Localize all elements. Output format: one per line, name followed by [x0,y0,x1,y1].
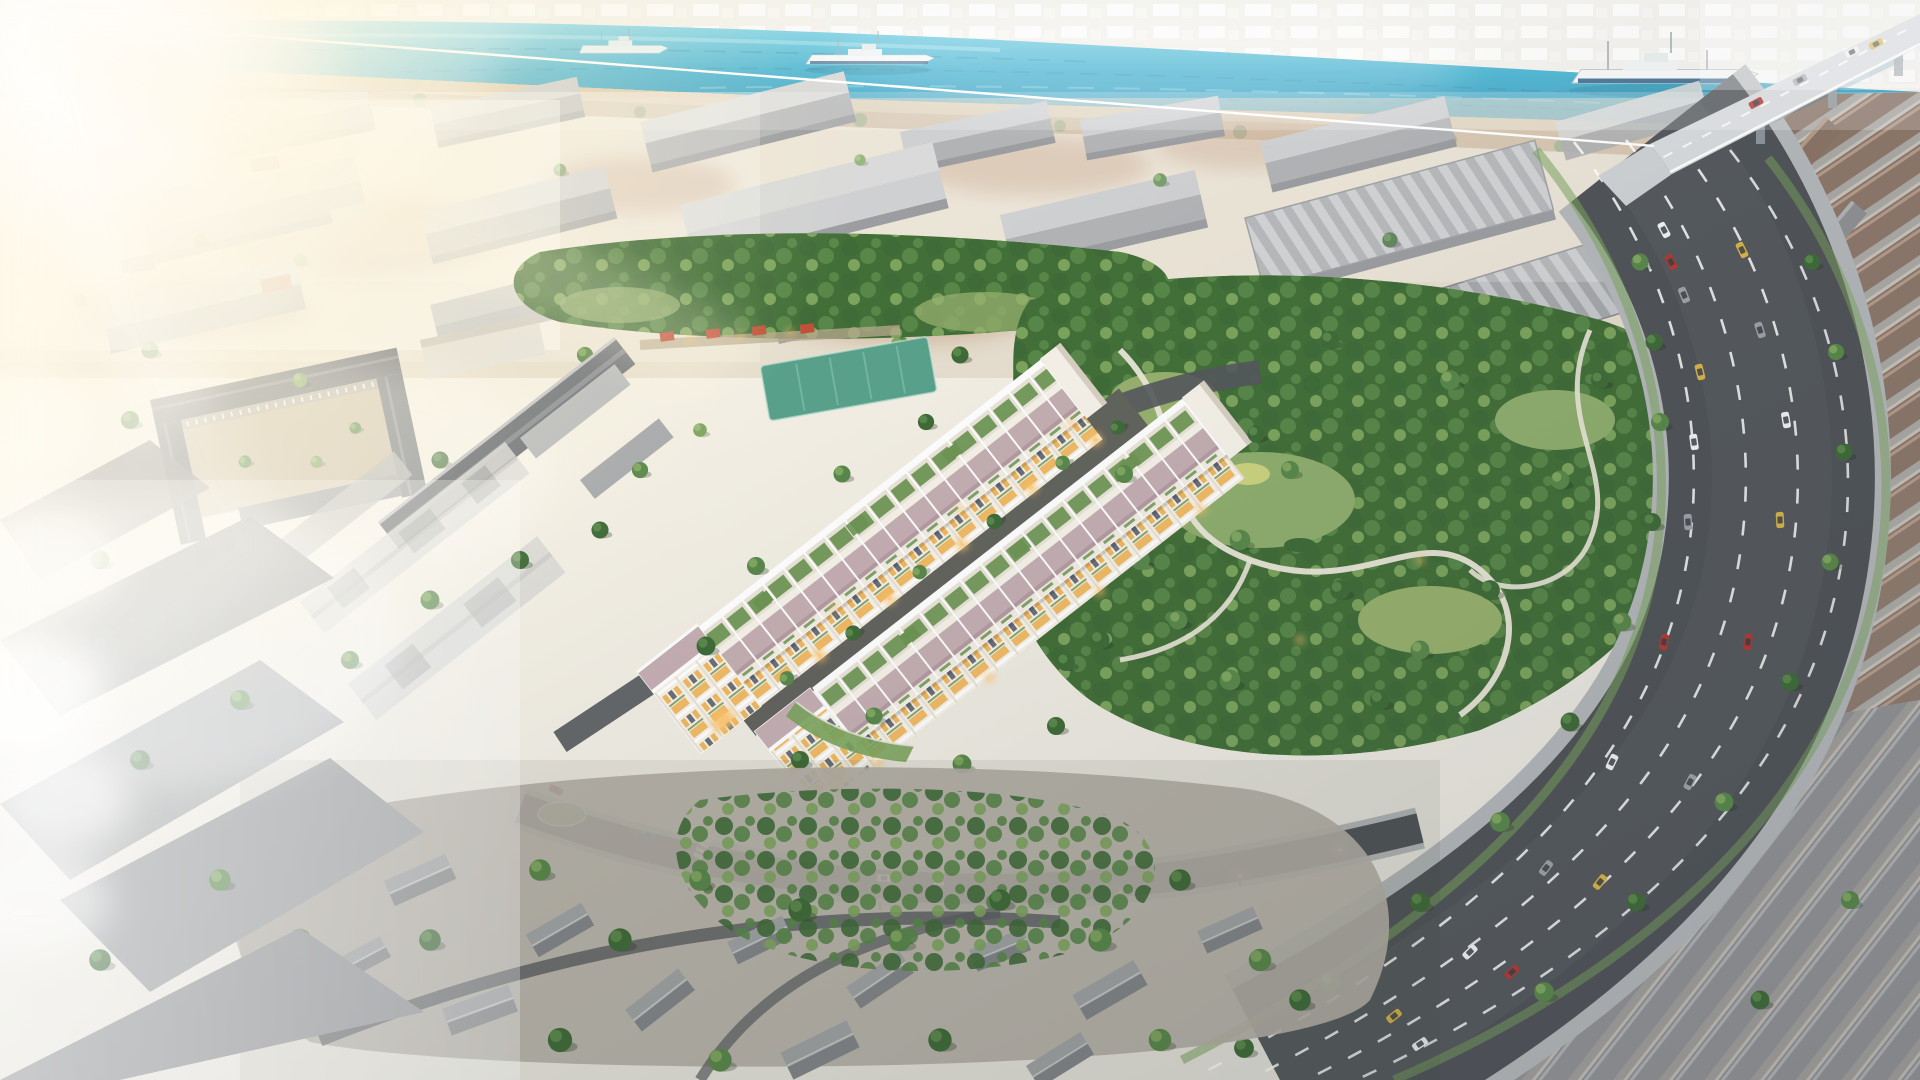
sun-flare [0,0,1100,900]
aerial-render [0,0,1920,1080]
render-canvas [0,0,1920,1080]
atmosphere [0,0,1920,1080]
